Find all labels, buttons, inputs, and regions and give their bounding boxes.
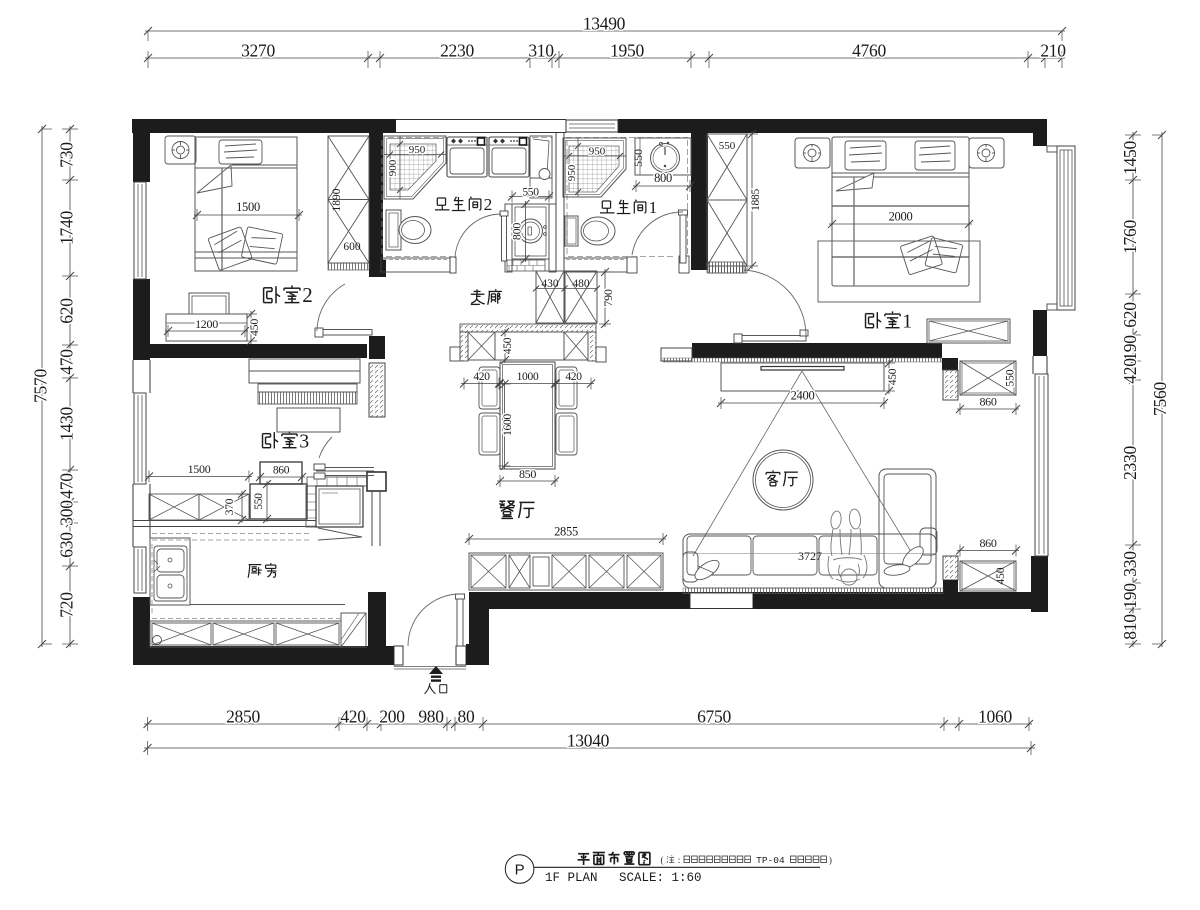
- svg-text:860: 860: [273, 465, 290, 477]
- svg-text:810: 810: [1120, 614, 1140, 640]
- svg-text:1060: 1060: [978, 707, 1012, 727]
- svg-text:900: 900: [387, 159, 399, 176]
- svg-text:2850: 2850: [226, 707, 260, 727]
- svg-text:3270: 3270: [241, 41, 275, 61]
- svg-text:TP-04: TP-04: [756, 855, 785, 866]
- svg-text:4760: 4760: [852, 41, 886, 61]
- svg-text:310: 310: [528, 41, 554, 61]
- svg-text:1450: 1450: [1120, 141, 1140, 175]
- svg-text:2855: 2855: [554, 525, 578, 539]
- svg-text:470: 470: [57, 349, 77, 375]
- svg-text:1500: 1500: [188, 462, 211, 476]
- svg-text:7570: 7570: [31, 369, 51, 403]
- svg-text:3: 3: [299, 430, 309, 452]
- svg-text:470: 470: [57, 473, 77, 499]
- svg-text:550: 550: [522, 186, 539, 198]
- svg-text:630: 630: [57, 532, 77, 558]
- svg-text:80: 80: [458, 707, 475, 727]
- svg-text:1430: 1430: [57, 407, 77, 441]
- svg-text:790: 790: [601, 289, 615, 306]
- svg-text:800: 800: [654, 171, 672, 185]
- svg-text:850: 850: [519, 467, 536, 481]
- svg-text:1: 1: [649, 198, 658, 217]
- svg-text:950: 950: [409, 144, 426, 156]
- svg-text:450: 450: [887, 368, 899, 385]
- svg-text:7560: 7560: [1150, 382, 1170, 416]
- svg-text:620: 620: [1120, 302, 1140, 328]
- svg-text:2000: 2000: [889, 210, 913, 224]
- svg-text:450: 450: [247, 319, 261, 336]
- svg-text:420: 420: [340, 707, 366, 727]
- svg-text:550: 550: [719, 140, 736, 152]
- svg-text:2: 2: [302, 283, 313, 307]
- svg-text:1200: 1200: [195, 317, 218, 331]
- svg-text:950: 950: [566, 164, 578, 181]
- svg-text:): ): [829, 855, 832, 865]
- svg-text:1: 1: [902, 310, 912, 332]
- svg-text:2400: 2400: [791, 389, 815, 403]
- svg-text:860: 860: [979, 395, 996, 409]
- svg-text:1000: 1000: [517, 371, 539, 383]
- svg-text:210: 210: [1040, 41, 1066, 61]
- svg-text:370: 370: [224, 498, 236, 515]
- svg-text:13490: 13490: [583, 14, 626, 34]
- svg-text:550: 550: [1005, 369, 1017, 387]
- svg-text:420: 420: [1120, 358, 1140, 384]
- svg-text:550: 550: [631, 149, 645, 167]
- svg-text:190: 190: [1120, 583, 1140, 609]
- svg-text:1600: 1600: [502, 414, 514, 436]
- svg-text:620: 620: [57, 298, 77, 324]
- svg-text:300: 300: [57, 500, 77, 526]
- svg-text:1740: 1740: [57, 211, 77, 245]
- svg-text:420: 420: [473, 371, 490, 383]
- svg-text:3727: 3727: [798, 549, 822, 563]
- svg-text:730: 730: [57, 142, 77, 168]
- svg-text:860: 860: [979, 536, 996, 550]
- svg-text:1950: 1950: [610, 41, 644, 61]
- svg-text::: :: [678, 855, 681, 865]
- svg-text:2230: 2230: [440, 41, 474, 61]
- svg-text:330: 330: [1120, 551, 1140, 577]
- svg-text:200: 200: [379, 707, 405, 727]
- svg-text:2: 2: [484, 195, 493, 214]
- svg-text:1890: 1890: [331, 188, 343, 211]
- svg-text:450: 450: [995, 567, 1007, 585]
- svg-text:1885: 1885: [750, 189, 762, 211]
- svg-text:13040: 13040: [567, 731, 610, 751]
- svg-text:6750: 6750: [697, 707, 731, 727]
- svg-text:1500: 1500: [236, 200, 260, 214]
- svg-text:190: 190: [1120, 335, 1140, 361]
- svg-text:(: (: [661, 855, 664, 865]
- svg-text:450: 450: [502, 337, 514, 354]
- svg-text:SCALE: 1:60: SCALE: 1:60: [619, 871, 702, 885]
- svg-text:600: 600: [343, 241, 361, 253]
- svg-text:950: 950: [589, 145, 606, 157]
- svg-text:420: 420: [565, 371, 582, 383]
- svg-text:550: 550: [253, 493, 265, 510]
- svg-text:800: 800: [510, 223, 524, 240]
- svg-text:P: P: [515, 862, 525, 879]
- svg-text:2330: 2330: [1120, 446, 1140, 480]
- svg-text:720: 720: [57, 592, 77, 618]
- svg-text:980: 980: [418, 707, 444, 727]
- svg-text:1F PLAN: 1F PLAN: [545, 871, 598, 885]
- svg-text:1760: 1760: [1120, 220, 1140, 254]
